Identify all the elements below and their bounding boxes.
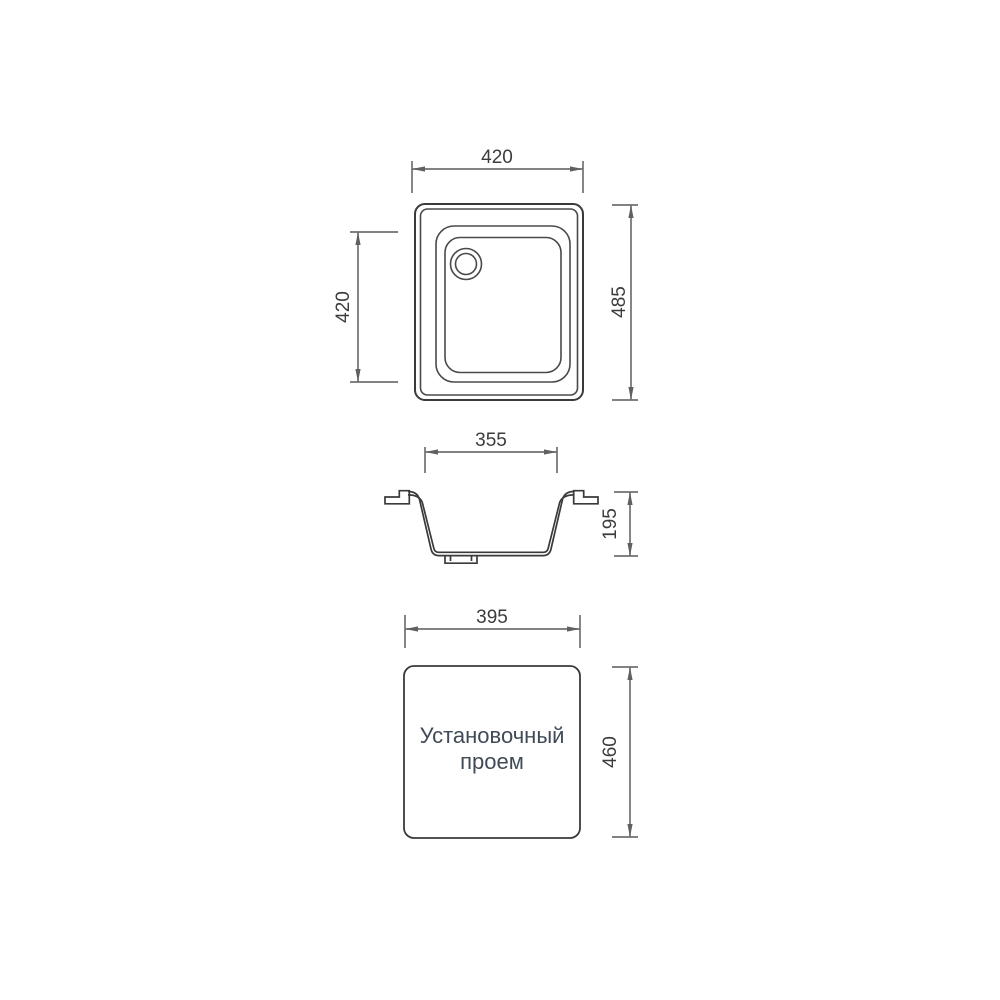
top-view-width-label: 420	[481, 147, 513, 168]
installation-opening-label-line1: Установочный	[420, 723, 565, 748]
top-view-width-dimension: 420	[412, 147, 583, 193]
bowl-profile-inner	[408, 495, 574, 552]
sink-dimension-drawing: 420 420 485 355	[0, 0, 1000, 1000]
top-view-bowl-dimension: 420	[333, 232, 398, 382]
section-height-dimension: 195	[600, 492, 638, 556]
section-view: 355 195	[385, 430, 638, 563]
cutout-width-label: 395	[476, 607, 508, 628]
cutout-height-dimension: 460	[600, 667, 638, 837]
section-width-dimension: 355	[425, 430, 557, 473]
cutout-width-dimension: 395	[405, 607, 580, 648]
top-view: 420 420 485	[333, 147, 638, 400]
left-mounting-bracket	[385, 491, 409, 504]
cutout-view: 395 Установочный проем 460	[404, 607, 638, 838]
top-view-height-dimension: 485	[609, 205, 638, 400]
installation-opening-label-line2: проем	[460, 749, 524, 774]
drawing-canvas: 420 420 485 355	[0, 0, 1000, 1000]
top-view-height-label: 485	[609, 286, 630, 318]
section-height-label: 195	[600, 508, 621, 540]
right-mounting-bracket	[574, 491, 598, 504]
cutout-height-label: 460	[600, 736, 621, 768]
section-width-label: 355	[475, 430, 507, 451]
top-view-bowl-height-label: 420	[333, 291, 354, 323]
